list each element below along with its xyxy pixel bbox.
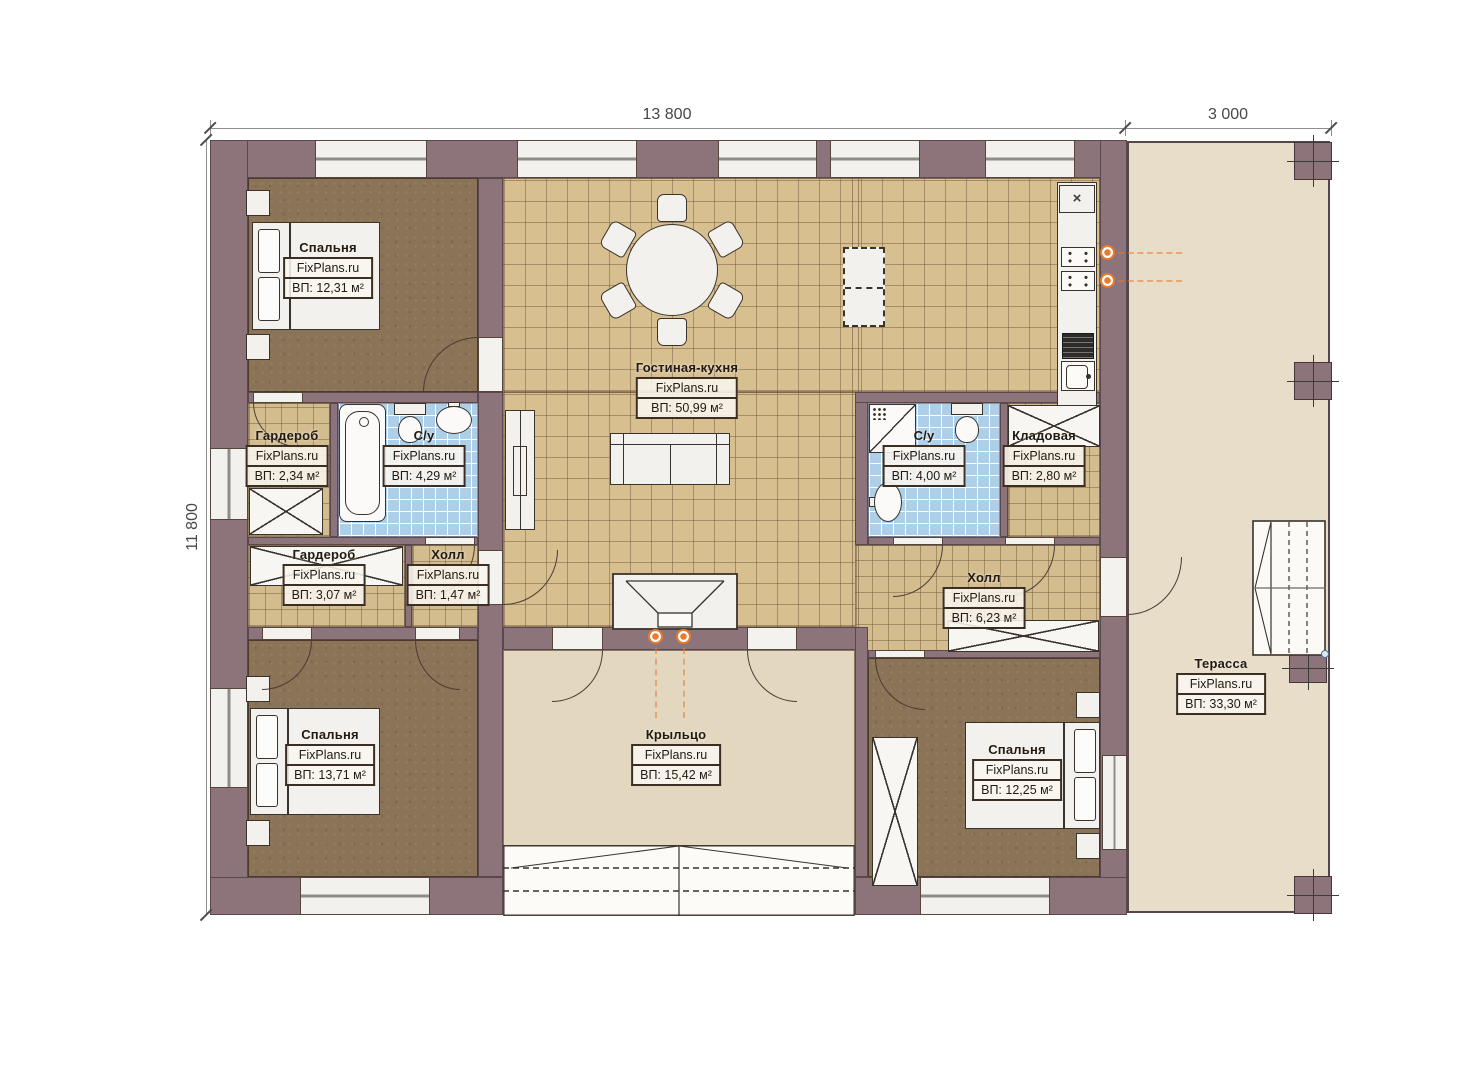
- room-name: Холл: [407, 547, 490, 562]
- room-area: ВП: 50,99 м²: [636, 399, 738, 419]
- nightstand: [246, 820, 270, 846]
- pillar: [1294, 142, 1332, 180]
- window: [985, 140, 1075, 178]
- dimension-width-terrace: 3 000: [1208, 106, 1248, 124]
- room-name: Спальня: [283, 240, 373, 255]
- watermark: FixPlans.ru: [285, 744, 375, 766]
- room-name: Гардероб: [246, 428, 329, 443]
- watermark: FixPlans.ru: [636, 377, 738, 399]
- watermark: FixPlans.ru: [943, 587, 1026, 609]
- room-name: Спальня: [972, 742, 1062, 757]
- door-leaf: [262, 627, 312, 640]
- window: [210, 448, 248, 520]
- room-label-wardrobe-small: Гардероб FixPlans.ru ВП: 2,34 м²: [246, 428, 329, 487]
- room-name: Холл: [943, 570, 1026, 585]
- nightstand: [1076, 833, 1100, 859]
- wall-left-spine: [478, 392, 503, 877]
- door-leaf: [478, 337, 503, 392]
- wall-lamp-icon: [1100, 273, 1115, 288]
- watermark: FixPlans.ru: [283, 257, 373, 279]
- room-area: ВП: 2,80 м²: [1003, 467, 1086, 487]
- kitchen-sink-icon: [1061, 361, 1095, 391]
- wall-wardrobe-bath-divider: [330, 403, 338, 537]
- lamp-guide-line: [1118, 280, 1182, 282]
- wall-porch-right: [855, 627, 868, 877]
- chair: [657, 318, 687, 346]
- room-area: ВП: 12,31 м²: [283, 279, 373, 299]
- watermark: FixPlans.ru: [1176, 673, 1266, 695]
- stair-reference-dot: [1321, 650, 1329, 658]
- watermark: FixPlans.ru: [407, 564, 490, 586]
- stair-landing-pillar: [1289, 653, 1327, 683]
- door-leaf: [747, 627, 797, 650]
- room-label-bedroom-bottom-left: Спальня FixPlans.ru ВП: 13,71 м²: [285, 727, 375, 786]
- cabinet: [505, 410, 535, 530]
- closet: [249, 488, 323, 535]
- room-name: С/у: [383, 428, 466, 443]
- watermark: FixPlans.ru: [1003, 445, 1086, 467]
- room-label-living-kitchen: Гостиная-кухня FixPlans.ru ВП: 50,99 м²: [636, 360, 738, 419]
- window: [718, 140, 817, 178]
- watermark: FixPlans.ru: [246, 445, 329, 467]
- stove-burners-icon: [1061, 247, 1095, 267]
- room-area: ВП: 33,30 м²: [1176, 695, 1266, 715]
- sofa: [610, 433, 730, 485]
- dimension-line-top: [210, 128, 1332, 129]
- room-name: Гостиная-кухня: [636, 360, 738, 375]
- nightstand: [246, 334, 270, 360]
- floor-plan: 13 800 3 000 11 800: [0, 0, 1473, 1080]
- terrace-stairs: [1252, 520, 1326, 656]
- watermark: FixPlans.ru: [283, 564, 366, 586]
- room-name: Спальня: [285, 727, 375, 742]
- room-label-bathroom-right: С/у FixPlans.ru ВП: 4,00 м²: [883, 428, 966, 487]
- room-label-hall-small: Холл FixPlans.ru ВП: 1,47 м²: [407, 547, 490, 606]
- room-name: С/у: [883, 428, 966, 443]
- bathtub-icon: [339, 404, 386, 522]
- door-leaf: [875, 650, 925, 658]
- room-label-porch: Крыльцо FixPlans.ru ВП: 15,42 м²: [631, 727, 721, 786]
- wall-lamp-icon: [1100, 245, 1115, 260]
- nightstand: [246, 190, 270, 216]
- room-area: ВП: 6,23 м²: [943, 609, 1026, 629]
- porch-stairs: [503, 845, 855, 916]
- watermark: FixPlans.ru: [631, 744, 721, 766]
- window: [517, 140, 637, 178]
- room-label-terrace: Терасса FixPlans.ru ВП: 33,30 м²: [1176, 656, 1266, 715]
- stove-burners-icon: [1061, 271, 1095, 291]
- door-leaf: [893, 537, 943, 545]
- closet: [872, 737, 918, 886]
- watermark: FixPlans.ru: [972, 759, 1062, 781]
- dimension-line-left: [206, 140, 207, 915]
- room-label-wardrobe-large: Гардероб FixPlans.ru ВП: 3,07 м²: [283, 547, 366, 606]
- window: [830, 140, 920, 178]
- door-leaf: [1005, 537, 1055, 545]
- living-kitchen-floor: [503, 178, 1100, 392]
- room-area: ВП: 2,34 м²: [246, 467, 329, 487]
- watermark: FixPlans.ru: [383, 445, 466, 467]
- room-label-bedroom-bottom-right: Спальня FixPlans.ru ВП: 12,25 м²: [972, 742, 1062, 801]
- lamp-guide-line: [655, 648, 657, 718]
- kitchen-island: [843, 247, 885, 327]
- window: [920, 877, 1050, 915]
- room-name: Терасса: [1176, 656, 1266, 671]
- lamp-guide-line: [1118, 252, 1182, 254]
- kitchen-counter: ×: [1057, 182, 1097, 410]
- door-leaf: [1100, 557, 1127, 617]
- room-label-hall-large: Холл FixPlans.ru ВП: 6,23 м²: [943, 570, 1026, 629]
- pillar: [1294, 362, 1332, 400]
- door-leaf: [415, 627, 460, 640]
- room-area: ВП: 13,71 м²: [285, 766, 375, 786]
- dining-table: [626, 224, 718, 316]
- room-area: ВП: 3,07 м²: [283, 586, 366, 606]
- watermark: FixPlans.ru: [883, 445, 966, 467]
- window: [1102, 755, 1127, 850]
- room-label-bathroom-left: С/у FixPlans.ru ВП: 4,29 м²: [383, 428, 466, 487]
- door-leaf: [425, 537, 475, 545]
- door-leaf: [253, 392, 303, 403]
- door-leaf: [552, 627, 603, 650]
- chair: [657, 194, 687, 222]
- fireplace: [612, 573, 738, 630]
- pillar: [1294, 876, 1332, 914]
- room-name: Крыльцо: [631, 727, 721, 742]
- room-label-bedroom-top-left: Спальня FixPlans.ru ВП: 12,31 м²: [283, 240, 373, 299]
- room-area: ВП: 4,29 м²: [383, 467, 466, 487]
- room-label-storage: Кладовая FixPlans.ru ВП: 2,80 м²: [1003, 428, 1086, 487]
- dimension-height: 11 800: [184, 503, 202, 551]
- wall-lamp-icon: [648, 629, 663, 644]
- room-area: ВП: 1,47 м²: [407, 586, 490, 606]
- zone-divider-line: [852, 178, 853, 627]
- room-area: ВП: 15,42 м²: [631, 766, 721, 786]
- window: [315, 140, 427, 178]
- vent-icon: ×: [1059, 185, 1095, 213]
- window: [210, 688, 248, 788]
- wall-left: [210, 140, 248, 915]
- room-name: Гардероб: [283, 547, 366, 562]
- refrigerator-icon: [1062, 333, 1094, 359]
- dimension-width-main: 13 800: [643, 106, 692, 124]
- room-name: Кладовая: [1003, 428, 1086, 443]
- room-area: ВП: 4,00 м²: [883, 467, 966, 487]
- nightstand: [1076, 692, 1100, 718]
- room-area: ВП: 12,25 м²: [972, 781, 1062, 801]
- wall-right-section-left: [855, 392, 868, 545]
- lamp-guide-line: [683, 648, 685, 718]
- window: [300, 877, 430, 915]
- wall-lamp-icon: [676, 629, 691, 644]
